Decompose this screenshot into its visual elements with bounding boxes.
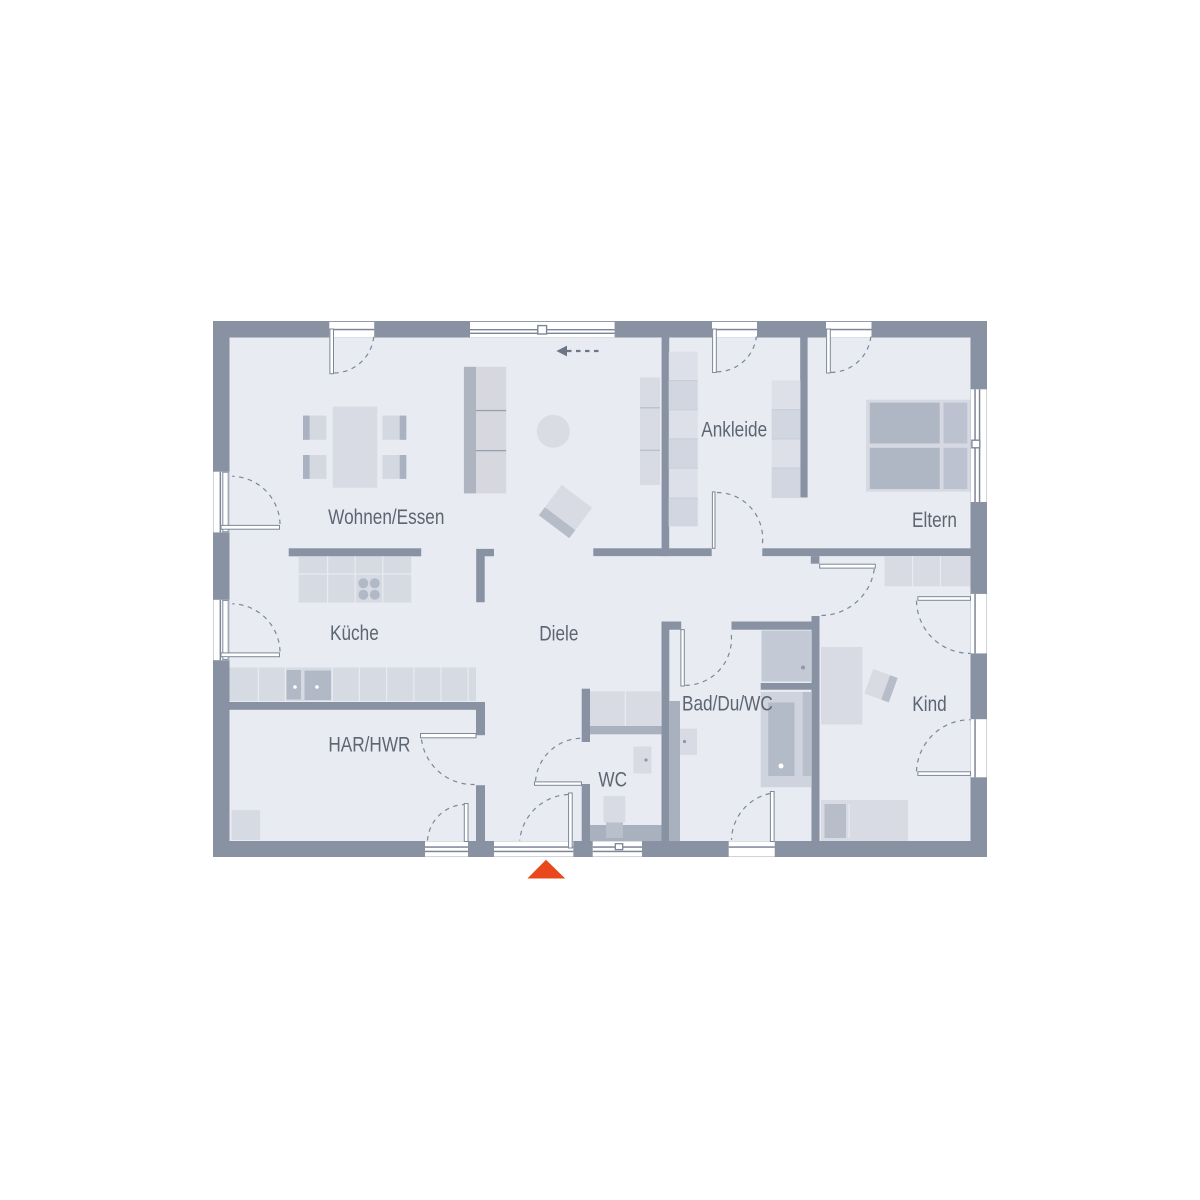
svg-text:Küche: Küche [330, 621, 379, 645]
svg-text:Diele: Diele [539, 622, 578, 646]
svg-text:HAR/HWR: HAR/HWR [328, 733, 410, 757]
svg-text:WC: WC [598, 768, 627, 792]
svg-text:Bad/Du/WC: Bad/Du/WC [682, 692, 773, 716]
svg-text:Wohnen/Essen: Wohnen/Essen [328, 505, 444, 529]
svg-text:Ankleide: Ankleide [701, 418, 767, 442]
svg-text:Eltern: Eltern [912, 508, 957, 532]
svg-text:Kind: Kind [912, 692, 946, 716]
